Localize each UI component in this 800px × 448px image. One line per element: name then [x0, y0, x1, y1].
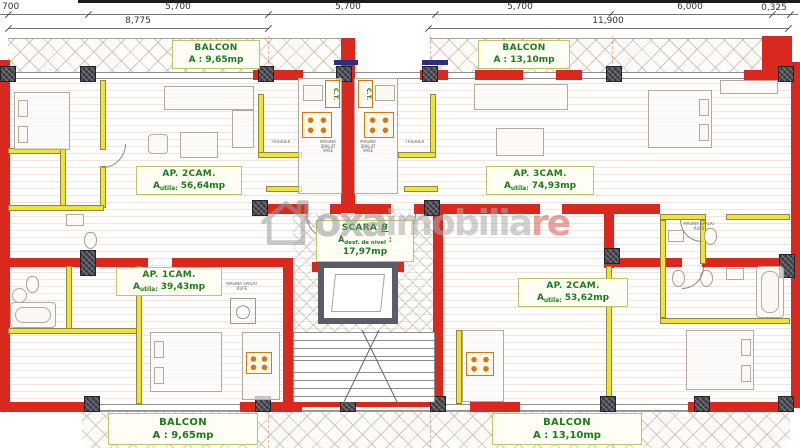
wall-segment [470, 402, 520, 412]
stove [302, 112, 332, 138]
dimension-label: 5,700 [492, 2, 548, 12]
partition-wall [660, 220, 666, 318]
apartment-label-3cam: AP. 3CAM. Autila: 74,93mp [486, 166, 594, 195]
pillow [18, 126, 28, 143]
column [80, 250, 96, 276]
window-sill [422, 60, 448, 65]
apartment-name: AP. 1CAM. [121, 270, 217, 282]
boiler-label: C.T. [325, 80, 340, 108]
apartment-name: AP. 2CAM. [141, 169, 237, 181]
partition-wall [258, 152, 302, 158]
dimension-line [8, 28, 268, 29]
pillow [741, 365, 751, 382]
apartment-area: Autila: 74,93mp [491, 181, 589, 193]
column [778, 396, 794, 412]
apartment-label-2cam-right: AP. 2CAM. Autila: 53,62mp [518, 278, 628, 307]
dimension-label: 5,700 [150, 2, 206, 12]
dimension-label: 6,000 [662, 2, 718, 12]
partition-wall [660, 318, 790, 324]
stove [466, 352, 494, 376]
balcony-label-top-left: BALCON A : 9,65mp [172, 40, 260, 69]
bathtub [10, 302, 56, 328]
column [0, 66, 16, 82]
sofa-chaise [232, 110, 254, 148]
wall-segment [475, 70, 523, 80]
kitchen-sink [375, 85, 395, 101]
balcony-label-bottom-left: BALCON A : 9,65mp [108, 413, 258, 445]
stove [246, 352, 272, 374]
elevator-cabin [331, 274, 385, 312]
partition-wall [398, 152, 436, 158]
dimension-label: 700 [2, 2, 19, 12]
bed [648, 90, 712, 148]
wall-segment [612, 258, 682, 267]
dimension-tick [265, 25, 272, 32]
bathtub-basin [761, 271, 779, 313]
stove [364, 112, 394, 138]
dimension-line [428, 28, 788, 29]
partition-wall [100, 80, 106, 150]
balcony-label-bottom-right: BALCON A : 13,10mp [492, 413, 642, 445]
column [694, 396, 710, 412]
wall-segment [330, 204, 341, 214]
balcony-label-top-right: BALCON A : 13,10mp [478, 40, 570, 69]
coffee-table [496, 128, 544, 156]
balcony-title: BALCON [113, 416, 253, 429]
washer-label: MASINA SPALAT RUFE [682, 222, 716, 236]
wall-segment [283, 258, 293, 406]
dimension-tick [785, 25, 792, 32]
column [258, 66, 274, 82]
wall-segment [791, 196, 800, 408]
bathtub [756, 266, 784, 318]
bed [14, 92, 70, 150]
partition-wall [8, 328, 142, 334]
pillow [154, 367, 164, 384]
wall-segment [172, 258, 283, 267]
boiler-label: C.T. [358, 80, 373, 108]
apartment-area: Autila: 53,62mp [523, 293, 623, 305]
armchair [148, 134, 168, 154]
balcony-area: A : 9,65mp [177, 55, 255, 67]
dimension-label: 8,775 [110, 16, 166, 26]
pillow [154, 341, 164, 358]
partition-wall [404, 186, 438, 192]
dimension-label: 11,900 [578, 16, 638, 26]
column [778, 66, 794, 82]
staircase-label: SCARAB Adesf. de nivel : 17,97mp [316, 220, 414, 262]
column [252, 200, 268, 216]
column [80, 66, 96, 82]
dimension-label: 0,325 [752, 3, 796, 13]
fridge-label: FRIGIDER [400, 140, 430, 145]
partition-wall [258, 94, 264, 158]
staircase-area-value: 17,97mp [321, 247, 409, 259]
pillow [741, 339, 751, 356]
partition-wall [60, 148, 66, 210]
apartment-area: Autila: 56,64mp [141, 181, 237, 193]
partition-wall [8, 205, 104, 211]
toilet [26, 276, 39, 293]
wall-segment [355, 204, 391, 214]
dimension-label: 5,700 [320, 2, 376, 12]
partition-wall [430, 94, 436, 158]
floor-plan-canvas: 700 5,700 5,700 5,700 6,000 0,325 8,775 … [0, 0, 800, 448]
partition-wall [266, 186, 302, 192]
dishwasher-label: MASINA SPALAT VASE [316, 140, 340, 156]
partition-wall [100, 166, 106, 208]
bathtub-basin [15, 307, 51, 323]
column [424, 200, 440, 216]
column [600, 396, 616, 412]
wall-segment [791, 62, 800, 196]
window-strip [8, 72, 792, 79]
balcony-area: A : 13,10mp [497, 429, 637, 442]
staircase-steps [293, 332, 435, 402]
staircase-area: Adesf. de nivel : [321, 235, 409, 247]
partition-wall [66, 266, 72, 332]
toilet [84, 232, 97, 249]
pillow [18, 100, 28, 117]
wall-segment [562, 204, 660, 214]
window-sill [334, 60, 358, 65]
coffee-table [180, 132, 218, 158]
bathroom-sink [12, 288, 27, 303]
sofa [474, 84, 568, 110]
fridge-label: FRIGIDER [266, 140, 296, 145]
bed [686, 330, 754, 390]
column [604, 248, 620, 264]
washer-label: MASINA SPALAT RUFE [224, 282, 260, 296]
apartment-name: AP. 3CAM. [491, 169, 589, 181]
balcony-title: BALCON [177, 43, 255, 55]
column [84, 396, 100, 412]
balcony-title: BALCON [497, 416, 637, 429]
bed [150, 332, 222, 392]
balcony-title: BALCON [483, 43, 565, 55]
elevator-shaft [318, 262, 398, 324]
wall-segment [0, 258, 148, 267]
column [606, 66, 622, 82]
balcony-area: A : 13,10mp [483, 55, 565, 67]
apartment-name: AP. 2CAM. [523, 281, 623, 293]
wall-segment [0, 60, 10, 404]
partition-wall [726, 214, 790, 220]
wall-segment [556, 70, 582, 80]
washing-machine [230, 298, 256, 324]
kitchen-sink [303, 85, 323, 101]
bathroom-sink [726, 268, 744, 280]
wardrobe [720, 80, 778, 94]
pillow [699, 99, 709, 116]
apartment-area: Autila: 39,43mp [121, 282, 217, 294]
pillow [699, 124, 709, 141]
bathroom-sink [66, 214, 84, 226]
dimension-line [0, 14, 798, 15]
staircase-title: SCARAB [321, 223, 409, 235]
sofa [164, 86, 254, 110]
apartment-label-2cam-left: AP. 2CAM. Autila: 56,64mp [136, 166, 242, 195]
column [422, 66, 438, 82]
dishwasher-label: MASINA SPALAT VASE [356, 140, 380, 156]
apartment-label-1cam: AP. 1CAM. Autila: 39,43mp [116, 267, 222, 296]
balcony-area: A : 9,65mp [113, 429, 253, 442]
